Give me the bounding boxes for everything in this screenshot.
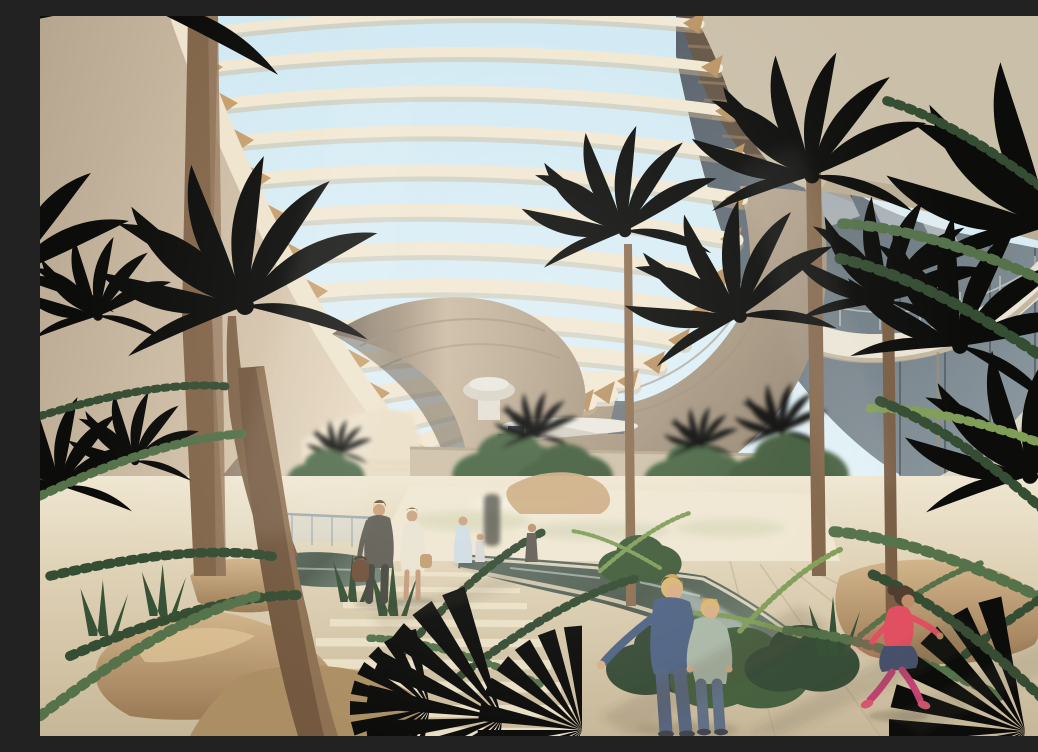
rendered-scene — [40, 16, 1038, 736]
warm-cast — [40, 16, 1038, 736]
atrium-rendering — [40, 16, 1038, 736]
